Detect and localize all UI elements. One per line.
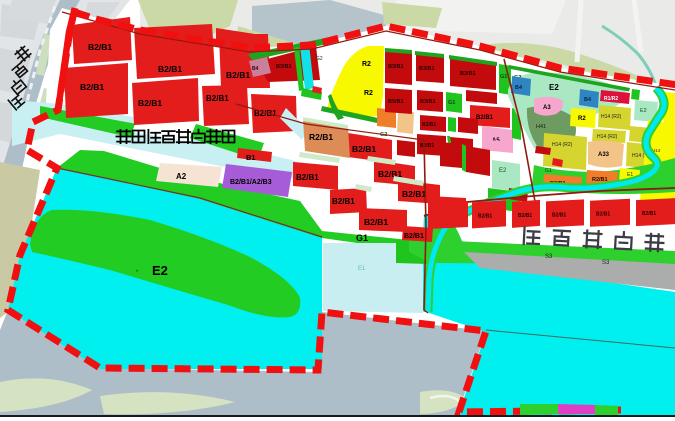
svg-text:B2/B1: B2/B1 [476, 115, 494, 121]
svg-text:B4: B4 [252, 66, 259, 72]
svg-text:G1: G1 [356, 233, 368, 243]
svg-text:B3/B1: B3/B1 [460, 71, 476, 77]
svg-text:S3: S3 [602, 260, 610, 266]
svg-text:B2/B1: B2/B1 [80, 82, 104, 92]
svg-text:S3: S3 [545, 254, 553, 260]
svg-text:B2/B1: B2/B1 [332, 197, 355, 206]
svg-text:B2/B1: B2/B1 [642, 211, 656, 217]
svg-text:H41: H41 [536, 124, 546, 130]
svg-text:A3: A3 [543, 105, 551, 111]
svg-text:G1: G1 [545, 168, 552, 174]
svg-text:B2/B1: B2/B1 [226, 70, 250, 80]
svg-text:H14 (R2): H14 (R2) [597, 134, 618, 140]
svg-text:R1/R2: R1/R2 [604, 96, 618, 102]
svg-text:R2: R2 [364, 90, 373, 97]
svg-text:E2: E2 [549, 83, 559, 92]
svg-text:B2/B1: B2/B1 [596, 212, 610, 218]
svg-text:B3/B1: B3/B1 [276, 64, 292, 70]
svg-text:E2: E2 [499, 168, 507, 174]
svg-text:B2/B1: B2/B1 [478, 213, 492, 219]
svg-text:B3/B1: B3/B1 [420, 99, 436, 105]
svg-text:R2: R2 [578, 116, 586, 122]
svg-text:B2/B1/A2/B3: B2/B1/A2/B3 [230, 179, 272, 186]
svg-text:B2/B1: B2/B1 [88, 42, 112, 52]
svg-text:B2/B1: B2/B1 [420, 143, 434, 149]
svg-text:G1: G1 [500, 74, 507, 80]
svg-text:R2/B1: R2/B1 [309, 132, 333, 142]
svg-text:G2: G2 [316, 56, 323, 62]
svg-text:B3/B1: B3/B1 [419, 66, 435, 72]
svg-text:B2/B1: B2/B1 [206, 94, 229, 103]
svg-text:G1: G1 [448, 100, 455, 106]
svg-text:E2: E2 [640, 108, 647, 114]
svg-text:B2/B1: B2/B1 [518, 213, 532, 219]
svg-text:E1: E1 [627, 172, 633, 178]
svg-text:H14 (R2): H14 (R2) [552, 142, 573, 148]
svg-text:B4: B4 [584, 97, 592, 103]
svg-text:B2/B1: B2/B1 [296, 173, 319, 182]
svg-text:E2: E2 [152, 263, 168, 278]
svg-text:B2/B1: B2/B1 [402, 189, 426, 199]
svg-text:B2/B1: B2/B1 [158, 64, 182, 74]
svg-text:B5/B1: B5/B1 [388, 99, 404, 105]
svg-text:H14 (R2): H14 (R2) [601, 114, 622, 120]
svg-text:B2/B1: B2/B1 [352, 144, 376, 154]
svg-text:B2/B1: B2/B1 [552, 212, 566, 218]
svg-text:B3/B1: B3/B1 [422, 122, 436, 128]
svg-text:B1: B1 [246, 153, 256, 162]
svg-text:B2/B1: B2/B1 [364, 217, 388, 227]
svg-text:E1: E1 [358, 266, 366, 272]
svg-text:B2/B1: B2/B1 [404, 233, 424, 240]
svg-text:A2: A2 [176, 172, 187, 181]
svg-text:A33: A33 [598, 152, 610, 158]
svg-text:B2/B1: B2/B1 [138, 98, 162, 108]
svg-text:B4: B4 [515, 85, 523, 91]
svg-text:B3/B1: B3/B1 [388, 64, 404, 70]
svg-text:R2: R2 [362, 61, 371, 68]
